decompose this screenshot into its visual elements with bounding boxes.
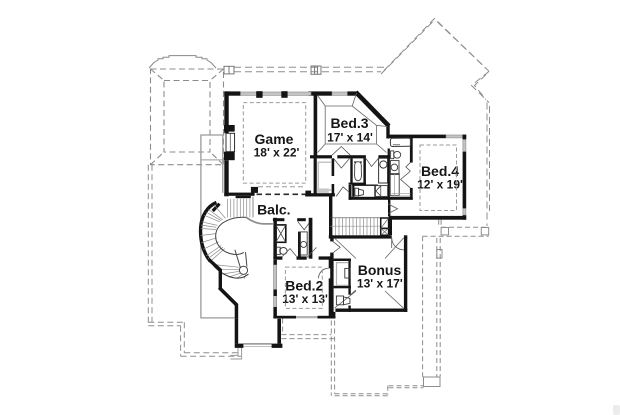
svg-text:17' x 14': 17' x 14' bbox=[327, 131, 373, 145]
svg-text:13' x 17': 13' x 17' bbox=[357, 277, 403, 291]
svg-text:Bed.3: Bed.3 bbox=[330, 115, 368, 131]
svg-text:18' x 22': 18' x 22' bbox=[254, 146, 300, 160]
svg-text:Balc.: Balc. bbox=[257, 202, 290, 218]
svg-text:13' x 13': 13' x 13' bbox=[282, 292, 328, 306]
